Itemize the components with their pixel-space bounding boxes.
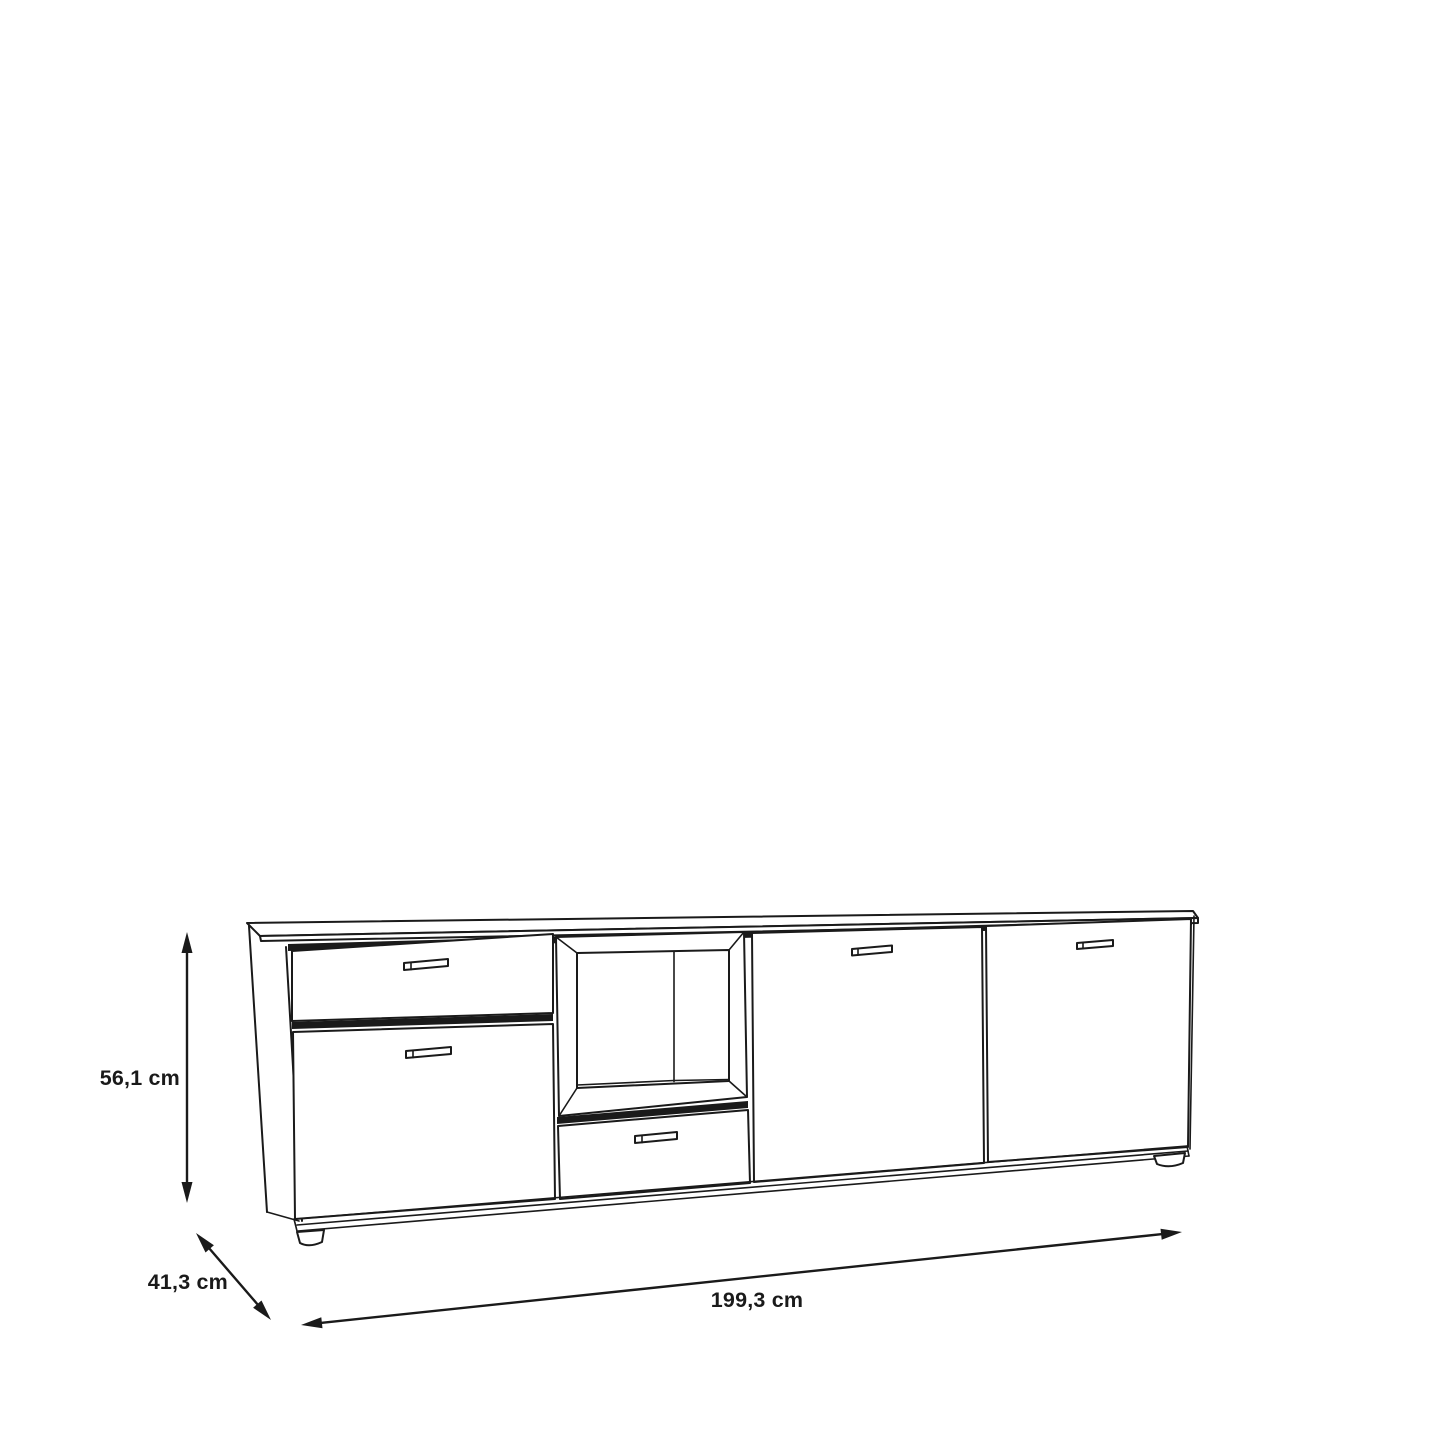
right-foot [1154, 1153, 1185, 1166]
arrow-right-icon [1161, 1229, 1183, 1240]
arrow-down-icon [182, 1182, 193, 1203]
depth-dimension-label: 41,3 cm [148, 1270, 228, 1294]
section-center-right [752, 927, 984, 1182]
width-dimension: 199,3 cm [301, 1229, 1182, 1329]
section-left [292, 934, 555, 1219]
height-dimension-label: 56,1 cm [100, 1066, 180, 1090]
section-right [986, 919, 1191, 1162]
left-foot [297, 1230, 324, 1245]
arrow-up-icon [182, 932, 193, 953]
left-outer-edge [249, 926, 267, 1212]
right-door-front [986, 919, 1191, 1162]
depth-dimension: 41,3 cm [148, 1233, 271, 1320]
arrow-left-icon [301, 1317, 323, 1328]
sideboard-dimension-diagram: 56,1 cm 41,3 cm 199,3 cm [0, 0, 1445, 1445]
cabinet-drawing [247, 911, 1198, 1245]
height-dimension: 56,1 cm [100, 932, 193, 1203]
niche-opening [577, 950, 729, 1088]
center-drawer-front [558, 1110, 750, 1199]
diagram-canvas: 56,1 cm 41,3 cm 199,3 cm [0, 0, 1445, 1445]
section-center [556, 932, 750, 1199]
width-dimension-label: 199,3 cm [711, 1288, 803, 1312]
center-right-door-front [752, 927, 984, 1182]
